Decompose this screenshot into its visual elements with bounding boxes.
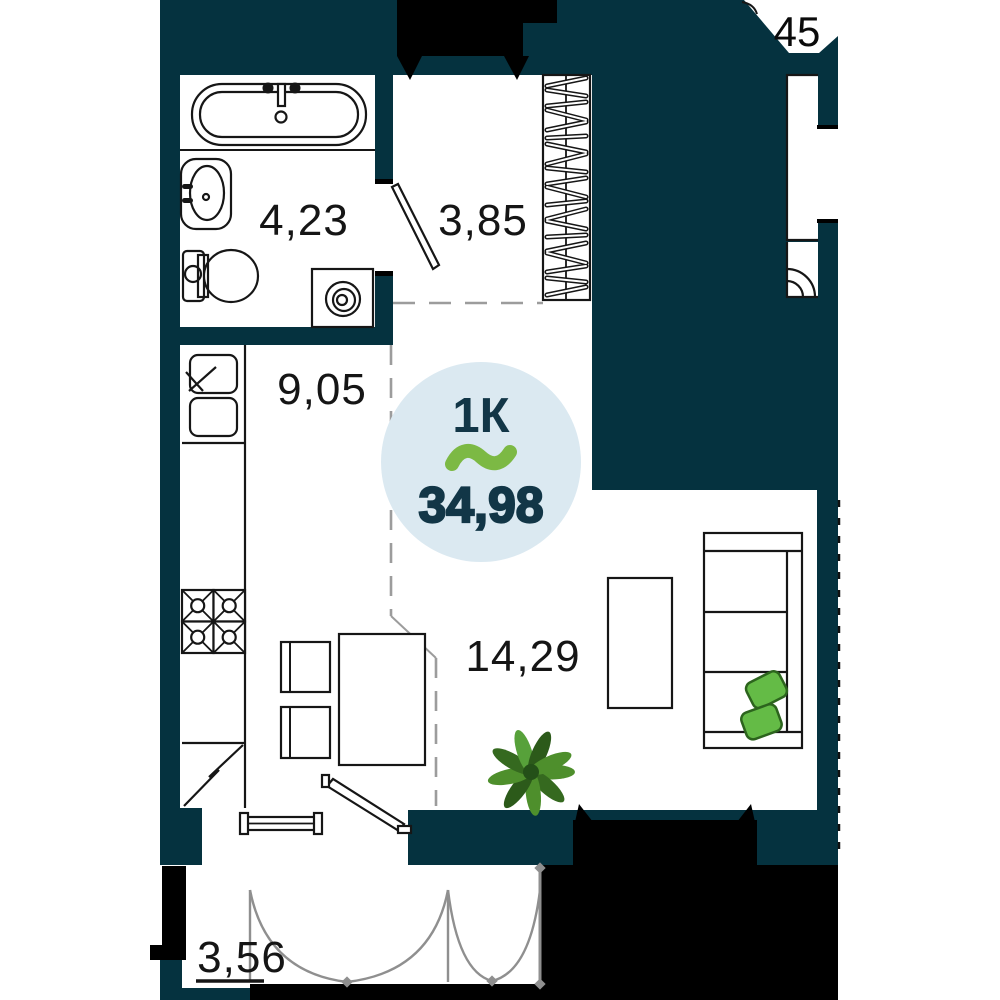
balcony-front-wall <box>250 984 542 1000</box>
floorplan-page: 1К 34,98 4,23 3,85 9,05 14,29 3,56 45 <box>0 0 1000 1000</box>
floorplan-svg: 1К 34,98 4,23 3,85 9,05 14,29 3,56 45 <box>0 0 1000 1000</box>
kitchen-area-label: 9,05 <box>277 365 367 414</box>
neighbor-room-strip <box>787 75 818 240</box>
balcony-area-label: 3,56 <box>197 933 287 982</box>
dining-table-icon <box>339 634 425 765</box>
toilet-icon <box>183 250 258 302</box>
neighbor-unit-area-label: 45 <box>774 8 821 55</box>
logo-tilde-icon <box>452 451 510 464</box>
bathroom-door-opening <box>375 183 393 275</box>
total-area-label: 34,98 <box>418 477 543 533</box>
stove-burners-icon <box>182 590 245 653</box>
chair-icon <box>281 707 330 758</box>
kitchen-window-icon <box>240 813 322 834</box>
hallway-area-label: 3,85 <box>438 196 528 245</box>
balcony-left-wall <box>162 866 186 952</box>
tv-stand-icon <box>608 578 672 708</box>
bath-sink-icon <box>181 159 231 229</box>
sofa-icon <box>704 533 802 748</box>
chair-icon <box>281 642 330 692</box>
area-badge: 1К 34,98 <box>381 362 581 562</box>
living-area-label: 14,29 <box>465 632 580 681</box>
washing-machine-icon <box>312 269 373 327</box>
bathtub-icon <box>192 83 366 146</box>
wardrobe-hangers-icon <box>543 75 590 300</box>
unit-type-label: 1К <box>452 389 509 443</box>
bathroom-area-label: 4,23 <box>259 196 349 245</box>
right-wall-doorway <box>817 128 838 220</box>
neighbor-mass <box>540 865 838 1000</box>
